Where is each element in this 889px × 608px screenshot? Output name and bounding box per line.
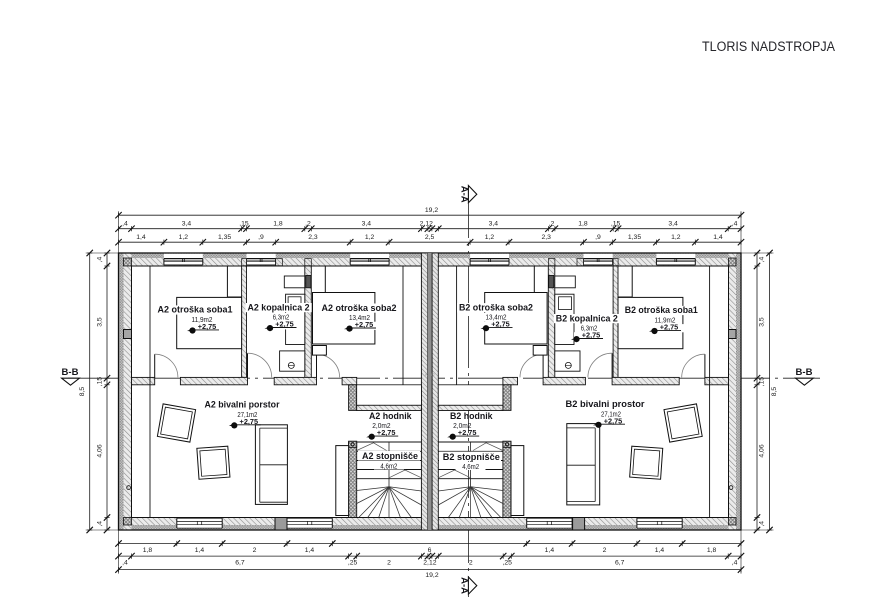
- svg-text:2,3: 2,3: [308, 234, 318, 241]
- svg-text:6,7: 6,7: [235, 559, 245, 566]
- svg-text:2,3: 2,3: [541, 234, 551, 241]
- svg-text:3,4: 3,4: [489, 221, 499, 228]
- svg-text:,4: ,4: [732, 221, 738, 228]
- svg-text:B2 stopnišče: B2 stopnišče: [443, 452, 500, 463]
- svg-text:1,4: 1,4: [545, 547, 555, 554]
- svg-text:4,6m2: 4,6m2: [462, 464, 479, 471]
- svg-text:3,4: 3,4: [668, 221, 678, 228]
- svg-text:B2 hodnik: B2 hodnik: [450, 411, 493, 422]
- svg-text:,9: ,9: [258, 234, 264, 241]
- svg-text:1,4: 1,4: [195, 547, 205, 554]
- svg-text:4,6m2: 4,6m2: [380, 463, 397, 470]
- svg-text:A2 otroška soba2: A2 otroška soba2: [322, 303, 397, 314]
- svg-text:A2 kopalnica 2: A2 kopalnica 2: [248, 302, 310, 313]
- svg-text:2: 2: [387, 559, 391, 566]
- svg-text:,9: ,9: [595, 234, 601, 241]
- svg-text:,4: ,4: [97, 256, 104, 262]
- svg-text:,4: ,4: [732, 559, 738, 566]
- svg-text:,15: ,15: [759, 377, 766, 387]
- svg-text:2: 2: [469, 559, 473, 566]
- svg-text:B2 otroška soba2: B2 otroška soba2: [459, 302, 533, 313]
- svg-text:3,5: 3,5: [759, 317, 766, 327]
- svg-text:1,8: 1,8: [143, 547, 153, 554]
- svg-text:,4: ,4: [122, 559, 128, 566]
- svg-text:,2: ,2: [305, 221, 311, 228]
- svg-text:2,5: 2,5: [425, 234, 435, 241]
- svg-text:2: 2: [253, 547, 257, 554]
- svg-text:A2 hodnik: A2 hodnik: [369, 411, 412, 422]
- svg-text:,2: ,2: [549, 221, 555, 228]
- svg-text:A2 stopnišče: A2 stopnišče: [362, 451, 418, 462]
- svg-text:2,12: 2,12: [423, 559, 436, 566]
- svg-text:1,4: 1,4: [655, 547, 665, 554]
- svg-text:1,4: 1,4: [136, 234, 146, 241]
- svg-text:6,7: 6,7: [615, 559, 625, 566]
- svg-text:1,8: 1,8: [578, 221, 588, 228]
- svg-text:TLORIS NADSTROPJA: TLORIS NADSTROPJA: [702, 39, 835, 54]
- svg-text:2,12: 2,12: [420, 221, 433, 228]
- svg-text:8,5: 8,5: [79, 387, 86, 397]
- svg-text:,4: ,4: [759, 256, 766, 262]
- svg-text:B2 bivalni prostor: B2 bivalni prostor: [566, 399, 645, 410]
- svg-text:B2 otroška soba1: B2 otroška soba1: [625, 305, 699, 316]
- svg-text:B-B: B-B: [796, 367, 813, 378]
- svg-text:,15: ,15: [611, 221, 621, 228]
- svg-text:,4: ,4: [122, 221, 128, 228]
- svg-text:1,35: 1,35: [628, 234, 641, 241]
- svg-text:3,4: 3,4: [362, 221, 372, 228]
- svg-text:A-A: A-A: [458, 186, 469, 203]
- svg-text:1,8: 1,8: [273, 221, 283, 228]
- svg-text:A-A: A-A: [458, 577, 469, 594]
- svg-text:4,06: 4,06: [97, 444, 104, 457]
- svg-text:1,35: 1,35: [218, 234, 231, 241]
- svg-text:B-B: B-B: [62, 367, 79, 378]
- svg-text:19,2: 19,2: [425, 572, 438, 579]
- svg-text:3,4: 3,4: [182, 221, 192, 228]
- svg-text:1,2: 1,2: [671, 234, 681, 241]
- svg-text:A2 otroška soba1: A2 otroška soba1: [158, 305, 234, 316]
- svg-text:4,06: 4,06: [759, 444, 766, 457]
- svg-text:19,2: 19,2: [425, 207, 438, 214]
- svg-text:B2 kopalnica 2: B2 kopalnica 2: [556, 313, 618, 324]
- svg-text:,25: ,25: [348, 559, 358, 566]
- svg-text:1,4: 1,4: [713, 234, 723, 241]
- svg-text:1,2: 1,2: [485, 234, 495, 241]
- svg-text:,4: ,4: [759, 521, 766, 527]
- svg-text:,4: ,4: [97, 521, 104, 527]
- svg-text:,15: ,15: [239, 221, 249, 228]
- svg-text:1,2: 1,2: [179, 234, 189, 241]
- svg-text:3,5: 3,5: [97, 317, 104, 327]
- svg-text:KL 12: KL 12: [425, 373, 434, 377]
- svg-text:8,5: 8,5: [771, 387, 778, 397]
- svg-text:,25: ,25: [502, 559, 512, 566]
- svg-text:6: 6: [428, 547, 432, 554]
- svg-text:A2 bivalni porstor: A2 bivalni porstor: [205, 400, 280, 411]
- svg-text:,15: ,15: [97, 377, 104, 387]
- svg-text:1,4: 1,4: [305, 547, 315, 554]
- svg-text:1,2: 1,2: [365, 234, 375, 241]
- svg-text:1,8: 1,8: [707, 547, 717, 554]
- svg-text:2: 2: [603, 547, 607, 554]
